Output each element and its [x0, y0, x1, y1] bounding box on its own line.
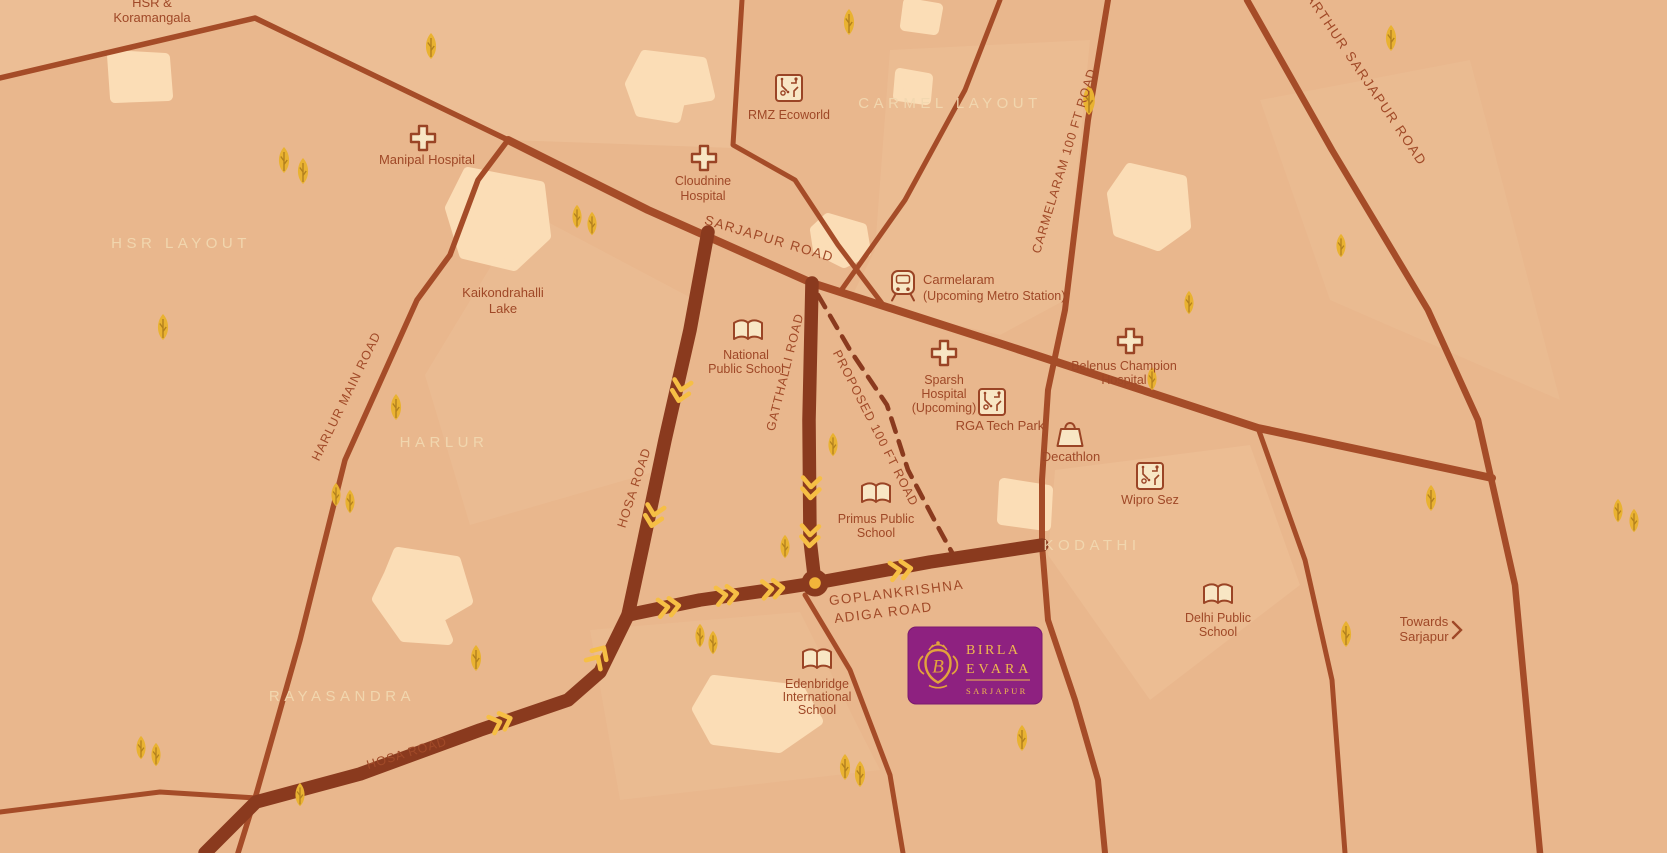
place-label: School — [1199, 625, 1237, 639]
location-map: B — [0, 0, 1667, 853]
project-badge: BIRLA EVARA SARJAPUR — [908, 627, 1042, 704]
tech-park-icon — [979, 389, 1005, 415]
place-label: Delhi Public — [1185, 611, 1251, 625]
area-label-carmel-layout: CARMEL LAYOUT — [858, 95, 1042, 112]
place-label: Belenus Champion — [1071, 359, 1177, 373]
place-label: National — [723, 348, 769, 362]
direction-southeast-line2: Sarjapur — [1399, 629, 1449, 644]
place-label: Public School — [708, 362, 784, 376]
place-label: RMZ Ecoworld — [748, 108, 830, 122]
place-label: Primus Public — [838, 512, 914, 526]
roundabout-icon — [802, 570, 829, 597]
school-book-icon — [734, 320, 762, 339]
tech-park-icon — [1137, 463, 1163, 489]
area-label-rayasandra: RAYASANDRA — [269, 688, 415, 705]
place-label: Manipal Hospital — [379, 152, 475, 167]
place-label: RGA Tech Park — [956, 418, 1045, 433]
place-label: School — [798, 703, 836, 717]
place-label: Edenbridge — [785, 677, 849, 691]
place-label: (Upcoming) — [912, 401, 977, 415]
school-book-icon — [862, 483, 890, 502]
place-label: Lake — [489, 301, 517, 316]
badge-location: SARJAPUR — [966, 686, 1028, 696]
school-book-icon — [803, 649, 831, 668]
place-label: Kaikondrahalli — [462, 285, 544, 300]
direction-northwest-line2: Koramangala — [113, 10, 191, 25]
school-book-icon — [1204, 584, 1232, 603]
area-label-kodathi: KODATHI — [1043, 537, 1140, 554]
place-label: Hospital — [680, 189, 725, 203]
place-label: Hospital — [921, 387, 966, 401]
area-label-hsr-layout: HSR LAYOUT — [111, 235, 251, 252]
place-label: Hospital — [1101, 373, 1146, 387]
place-label: Sparsh — [924, 373, 964, 387]
tech-park-icon — [776, 75, 802, 101]
badge-brand: BIRLA — [966, 643, 1021, 658]
place-label: Carmelaram — [923, 272, 995, 287]
area-label-harlur: HARLUR — [400, 434, 489, 451]
place-label: (Upcoming Metro Station) — [923, 289, 1065, 303]
route-gatthalli-road — [809, 283, 815, 583]
place-label: Cloudnine — [675, 174, 731, 188]
direction-northwest-line1: HSR & — [132, 0, 172, 10]
place-label: International — [783, 690, 852, 704]
place-label: Decathlon — [1042, 449, 1101, 464]
badge-project-name: EVARA — [966, 662, 1032, 677]
place-label: School — [857, 526, 895, 540]
place-label: Wipro Sez — [1121, 493, 1179, 507]
direction-southeast-line1: Towards — [1400, 614, 1449, 629]
